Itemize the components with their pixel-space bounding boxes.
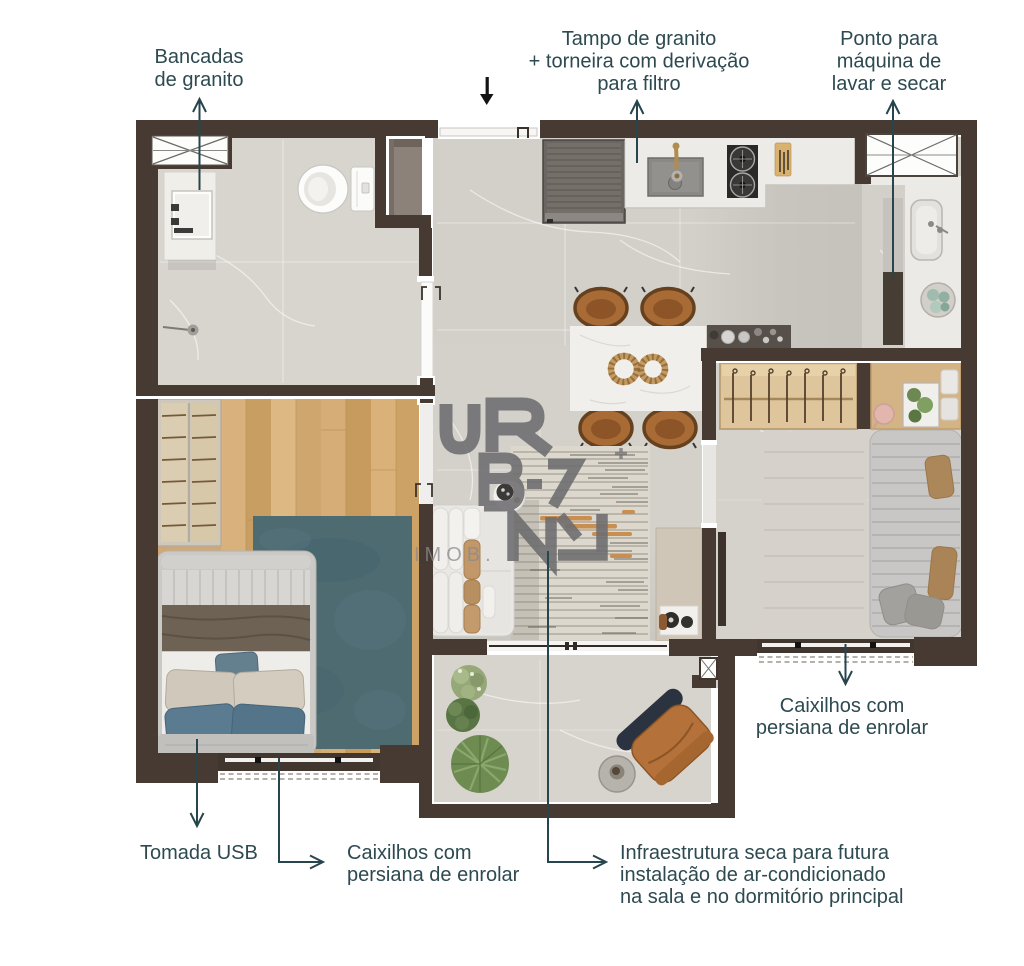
svg-text:Caixilhos com: Caixilhos com [780, 695, 904, 717]
svg-text:+ torneira com derivação: + torneira com derivação [529, 51, 750, 73]
svg-text:para filtro: para filtro [597, 73, 680, 95]
svg-text:persiana de enrolar: persiana de enrolar [347, 864, 520, 886]
svg-text:Bancadas: Bancadas [155, 46, 244, 68]
svg-text:lavar e secar: lavar e secar [832, 73, 947, 95]
svg-text:Tampo de granito: Tampo de granito [562, 28, 717, 50]
svg-text:Caixilhos com: Caixilhos com [347, 842, 471, 864]
svg-text:instalação de ar-condicionado: instalação de ar-condicionado [620, 864, 886, 886]
svg-text:IMOB.: IMOB. [414, 544, 496, 566]
svg-text:Ponto para: Ponto para [840, 28, 939, 50]
svg-text:de granito: de granito [155, 69, 244, 91]
svg-text:Tomada USB: Tomada USB [140, 842, 258, 864]
svg-text:persiana de enrolar: persiana de enrolar [756, 717, 929, 739]
svg-text:na sala e no dormitório princi: na sala e no dormitório principal [620, 886, 904, 908]
svg-text:Infraestrutura seca para futur: Infraestrutura seca para futura [620, 842, 890, 864]
svg-text:máquina de: máquina de [837, 51, 942, 73]
